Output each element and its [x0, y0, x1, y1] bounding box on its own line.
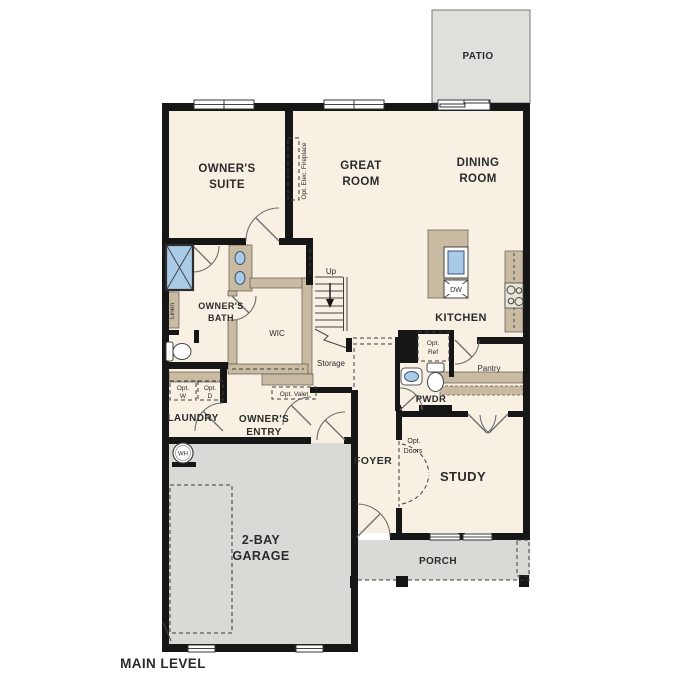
great-room-windows — [324, 100, 384, 109]
linen-label: Linen — [169, 303, 176, 319]
patio-label: PATIO — [462, 51, 493, 62]
owners-entry-label-1: OWNER'S — [239, 414, 289, 425]
suite-windows — [194, 100, 254, 109]
water-heater: WH — [173, 443, 193, 463]
storage-label: Storage — [317, 359, 346, 368]
optional-dryer-label-2: D — [208, 393, 213, 400]
garage-label-2: GARAGE — [232, 549, 289, 563]
porch-post-mid — [396, 576, 408, 587]
optional-dryer-label-1: Opt. — [204, 385, 216, 392]
dishwasher: DW — [444, 280, 468, 298]
wic-wall-right — [302, 278, 312, 374]
owners-suite-label-1: OWNER'S — [198, 163, 255, 175]
great-room-label-1: GREAT — [340, 160, 381, 172]
dining-room-label-1: DINING — [457, 157, 500, 169]
study-label: STUDY — [440, 469, 486, 484]
porch-post-left — [350, 576, 357, 588]
wic-label: WIC — [269, 329, 285, 338]
owners-bath-label-1: OWNER'S — [198, 301, 243, 311]
dining-room-label-2: ROOM — [459, 173, 496, 185]
shower — [166, 245, 193, 290]
powder-sink — [401, 368, 422, 385]
optional-ref-label-1: Opt. — [427, 340, 439, 347]
powder-toilet — [427, 363, 444, 392]
optional-washer-label-1: Opt. — [177, 385, 189, 392]
floor-plan-drawing: DW WH — [0, 0, 687, 687]
dishwasher-label: DW — [450, 287, 462, 294]
cooktop — [505, 283, 523, 308]
optional-doors-label-2: Doors — [404, 448, 423, 455]
water-heater-label: WH — [178, 452, 188, 458]
floor-plan-page: DW WH — [0, 0, 687, 687]
pantry-counter-optional — [440, 386, 523, 395]
great-room-label-2: ROOM — [342, 176, 379, 188]
owners-bath-label-2: BATH — [208, 313, 234, 323]
owners-entry-label-2: ENTRY — [246, 427, 282, 438]
optional-washer-label-2: W — [180, 393, 187, 400]
wic-wall-left-a — [228, 291, 237, 296]
patio-sliding-door — [438, 100, 490, 110]
entry-bench — [262, 374, 313, 385]
stairs-up-label: Up — [326, 267, 337, 276]
plan-title: MAIN LEVEL — [120, 656, 206, 671]
porch-label: PORCH — [419, 556, 457, 567]
porch-post-right — [519, 575, 529, 587]
optional-valet-label: Opt. Valet — [280, 391, 309, 398]
laundry-label: LAUNDRY — [167, 413, 218, 424]
optional-doors-label-1: Opt. — [407, 438, 420, 445]
powder-label: PWDR — [416, 394, 447, 405]
kitchen-label: KITCHEN — [435, 312, 487, 324]
pantry-label: Pantry — [477, 364, 500, 373]
optional-ref-label-2: Ref — [428, 349, 438, 356]
optional-fireplace-label: Opt. Elec. Fireplace — [301, 142, 308, 199]
garage-label-1: 2-BAY — [242, 533, 281, 547]
island-sink — [444, 247, 468, 278]
owners-suite-label-2: SUITE — [209, 179, 245, 191]
foyer-label: FOYER — [354, 455, 392, 467]
bath-toilet — [166, 342, 191, 361]
wic-wall-left-b — [228, 320, 237, 364]
